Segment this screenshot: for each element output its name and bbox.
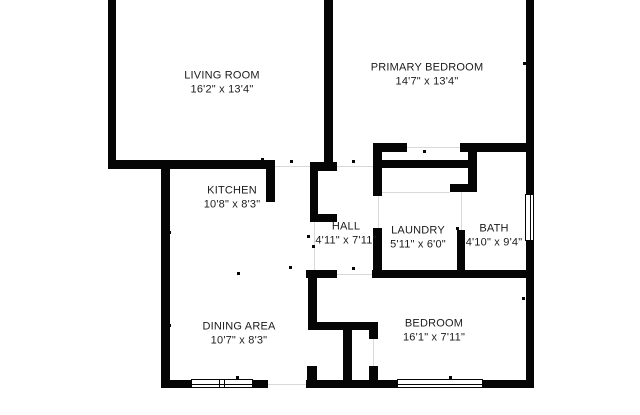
room-dimensions: 4'11" x 7'11" <box>315 234 376 248</box>
door-marker <box>236 376 239 379</box>
wall <box>369 330 378 339</box>
room-name: DINING AREA <box>202 320 275 334</box>
wall <box>308 274 317 324</box>
opening-guide <box>337 166 373 167</box>
room-name: HALL <box>315 220 376 234</box>
room-name: BATH <box>466 222 523 236</box>
door-marker <box>327 71 330 74</box>
door-marker <box>352 160 355 163</box>
opening-guide <box>378 196 379 228</box>
wall <box>108 160 275 169</box>
room-dimensions: 10'8" x 8'3" <box>204 198 261 212</box>
wall <box>307 366 317 388</box>
opening-guide <box>407 147 460 148</box>
room-label-bath: BATH 4'10" x 9'4" <box>466 222 523 251</box>
opening-guide <box>337 274 372 275</box>
opening-guide <box>382 192 450 193</box>
room-dimensions: 10'7" x 8'3" <box>202 334 275 348</box>
opening-guide <box>275 166 310 167</box>
wall <box>369 366 378 388</box>
room-dimensions: 4'10" x 9'4" <box>466 236 523 250</box>
door-marker <box>168 324 171 327</box>
opening-guide <box>268 384 306 385</box>
room-name: KITCHEN <box>204 184 261 198</box>
wall <box>252 380 268 388</box>
window <box>397 379 483 388</box>
room-name: PRIMARY BEDROOM <box>371 61 484 75</box>
window <box>191 379 253 388</box>
door-marker <box>522 297 525 300</box>
window-divider <box>224 380 225 387</box>
room-dimensions: 16'1" x 7'11" <box>403 331 465 345</box>
wall <box>372 270 534 278</box>
room-label-living-room: LIVING ROOM 16'2" x 13'4" <box>184 69 260 98</box>
wall <box>343 330 352 382</box>
room-dimensions: 14'7" x 13'4" <box>371 75 484 89</box>
wall <box>308 322 378 330</box>
door-marker <box>378 230 381 233</box>
door-marker <box>523 62 526 65</box>
door-marker <box>307 235 310 238</box>
room-label-dining-area: DINING AREA 10'7" x 8'3" <box>202 320 275 349</box>
opening-guide <box>461 192 462 230</box>
wall <box>161 380 193 388</box>
door-marker <box>113 72 116 75</box>
room-label-kitchen: KITCHEN 10'8" x 8'3" <box>204 184 261 213</box>
wall <box>450 184 477 192</box>
wall <box>310 162 318 222</box>
wall <box>526 0 534 195</box>
door-marker <box>449 376 452 379</box>
door-marker <box>352 267 355 270</box>
room-label-primary-bedroom: PRIMARY BEDROOM 14'7" x 13'4" <box>371 61 484 90</box>
room-label-hall: HALL 4'11" x 7'11" <box>315 220 376 249</box>
room-name: LIVING ROOM <box>184 69 260 83</box>
door-marker <box>261 158 264 161</box>
door-marker <box>289 266 292 269</box>
room-label-laundry: LAUNDRY 5'11" x 6'0" <box>390 224 446 253</box>
floor-plan: LIVING ROOM 16'2" x 13'4" PRIMARY BEDROO… <box>0 0 640 415</box>
wall <box>161 162 170 388</box>
wall <box>375 160 476 168</box>
door-marker <box>423 150 426 153</box>
wall <box>373 143 382 196</box>
door-marker <box>168 231 171 234</box>
window-divider <box>219 380 220 387</box>
room-dimensions: 16'2" x 13'4" <box>184 83 260 97</box>
room-dimensions: 5'11" x 6'0" <box>390 238 446 252</box>
window <box>525 194 534 241</box>
room-name: BEDROOM <box>403 317 465 331</box>
door-marker <box>290 160 293 163</box>
wall <box>526 240 534 388</box>
wall <box>266 160 275 202</box>
door-marker <box>456 227 459 230</box>
wall <box>306 380 398 388</box>
door-marker <box>237 272 240 275</box>
room-name: LAUNDRY <box>390 224 446 238</box>
opening-guide <box>373 339 374 366</box>
room-label-bedroom: BEDROOM 16'1" x 7'11" <box>403 317 465 346</box>
wall <box>324 0 333 171</box>
wall <box>108 0 116 169</box>
